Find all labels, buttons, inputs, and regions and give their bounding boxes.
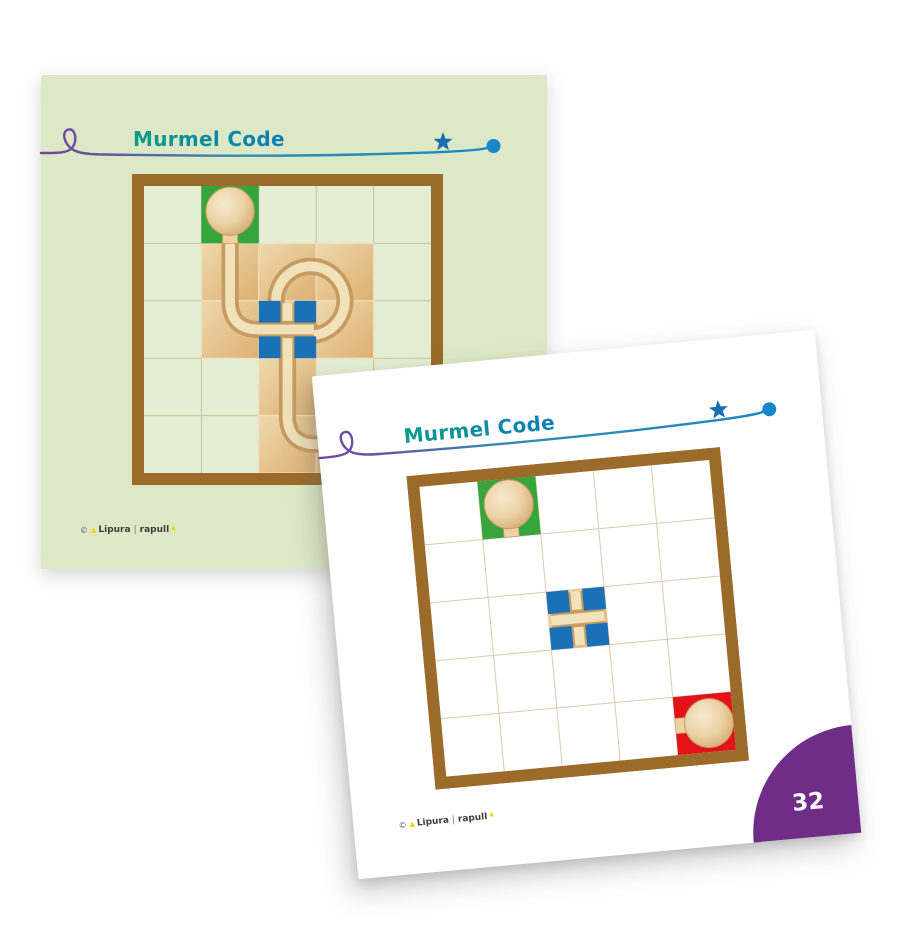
brand-logo: © ▲ Lipura | rapull ▲	[80, 525, 176, 535]
brand-mark-icon: ▲	[171, 524, 176, 531]
puzzle-board-front	[406, 447, 749, 790]
brand-logo: © ▲ Lipura | rapull ▲	[398, 811, 494, 830]
page-number: 32	[791, 788, 825, 817]
brand-mark-icon: ▲	[489, 810, 494, 817]
brand-name-1: Lipura	[98, 525, 130, 535]
brand-separator: |	[134, 525, 137, 535]
header-squiggle	[41, 115, 547, 175]
blue-peg	[294, 336, 316, 358]
blue-peg	[585, 623, 609, 647]
brand-separator: |	[451, 815, 455, 825]
blue-peg	[259, 336, 281, 358]
card-title: Murmel Code	[133, 127, 285, 151]
dot-icon	[762, 402, 777, 417]
star-icon	[434, 132, 453, 150]
copyright-symbol: ©	[398, 820, 407, 830]
dot-icon	[487, 139, 501, 153]
brand-name-2: rapull	[140, 525, 170, 535]
blue-peg	[549, 626, 573, 650]
brand-name-1: Lipura	[416, 816, 449, 829]
brand-triangle-icon: ▲	[409, 820, 415, 828]
star-icon	[708, 399, 729, 419]
brand-triangle-icon: ▲	[91, 526, 96, 534]
blue-peg	[582, 587, 606, 611]
copyright-symbol: ©	[80, 526, 88, 535]
blue-peg	[294, 301, 316, 323]
puzzle-grid	[406, 447, 749, 790]
marble	[206, 187, 254, 235]
stage: Murmel Code © ▲ Lipura | rapull ▲ Murme	[0, 0, 900, 943]
blue-peg	[259, 301, 281, 323]
puzzle-card-front: Murmel Code © ▲ Lipura | rapull ▲ 32	[312, 330, 861, 879]
blue-peg	[546, 590, 570, 614]
page-number-corner: 32	[744, 725, 862, 843]
brand-name-2: rapull	[458, 812, 488, 825]
